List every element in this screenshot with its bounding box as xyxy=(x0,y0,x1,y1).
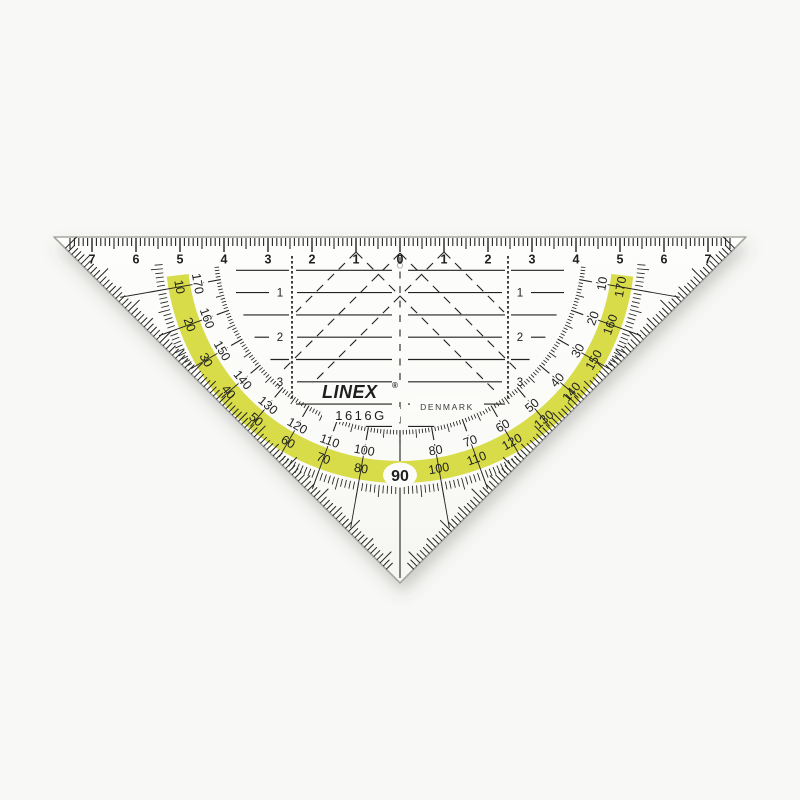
country-label: DENMARK xyxy=(420,402,474,412)
top-ruler-number: 5 xyxy=(617,253,624,267)
top-ruler-numbers: 765432101234567 xyxy=(89,253,712,267)
linex-set-square-photo: 1122337654321012345671020304050607080100… xyxy=(0,0,800,800)
top-ruler-number: 7 xyxy=(705,253,712,267)
grid-row-label-left: 2 xyxy=(277,332,283,344)
grid-row-label-left: 3 xyxy=(277,377,283,389)
model-number: 1616G xyxy=(335,408,387,423)
top-ruler-number: 4 xyxy=(221,253,228,267)
grid-row-label-right: 1 xyxy=(517,288,523,300)
top-ruler-number: 1 xyxy=(353,253,360,267)
top-ruler-number: 6 xyxy=(133,253,140,267)
brand-logo: LINEX xyxy=(322,382,378,402)
top-ruler-number: 3 xyxy=(265,253,272,267)
protractor-outer-label: 80 xyxy=(353,460,369,476)
top-ruler-number: 7 xyxy=(89,253,96,267)
top-ruler-number: 2 xyxy=(485,253,492,267)
grid-row-label-right: 3 xyxy=(517,377,523,389)
top-ruler-number: 1 xyxy=(441,253,448,267)
grid-row-label-left: 1 xyxy=(277,288,283,300)
protractor-inner-label: 80 xyxy=(428,442,444,458)
degree-90-label: 90 xyxy=(391,468,409,485)
top-ruler-number: 2 xyxy=(309,253,316,267)
set-square: 1122337654321012345671020304050607080100… xyxy=(0,0,800,800)
top-ruler-number: 3 xyxy=(529,253,536,267)
top-ruler-number: 6 xyxy=(661,253,668,267)
top-ruler-number: 5 xyxy=(177,253,184,267)
top-ruler-number: 4 xyxy=(573,253,580,267)
top-ruler-number: 0 xyxy=(397,253,404,267)
protractor-inner-label: 10 xyxy=(594,276,610,292)
protractor-outer-label: 10 xyxy=(171,279,187,295)
grid-row-label-right: 2 xyxy=(517,332,523,344)
registered-mark-icon: ® xyxy=(392,381,398,390)
